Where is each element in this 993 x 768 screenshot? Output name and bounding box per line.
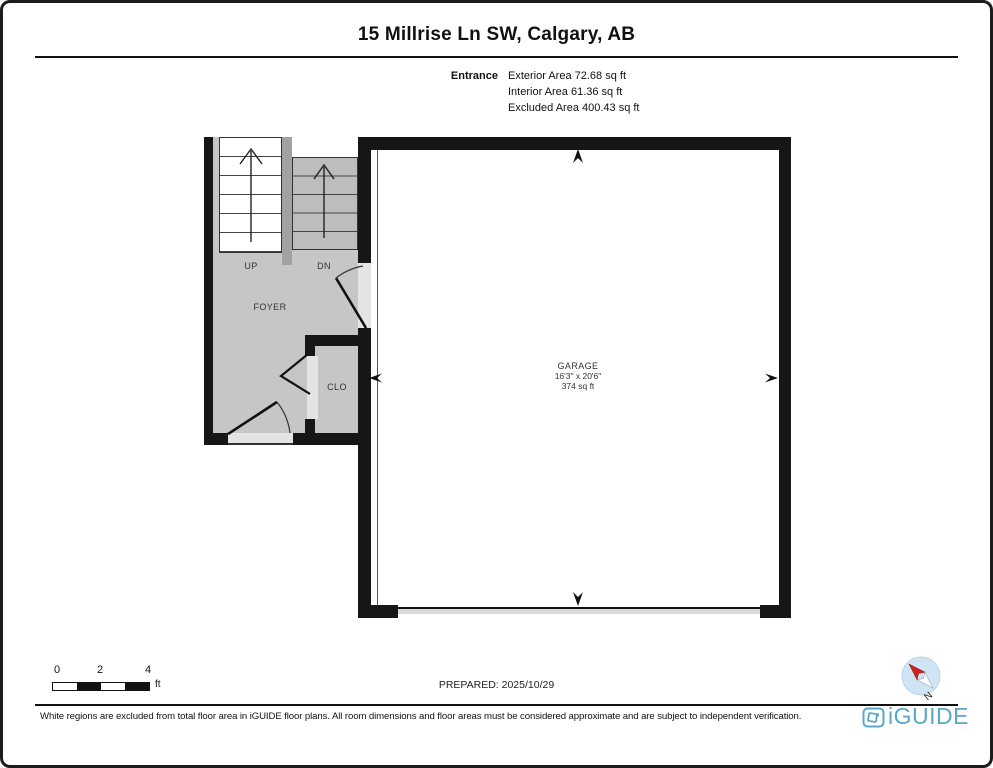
garage-left-wall-upper: [358, 137, 371, 263]
iguide-brand-text: iGUIDE: [888, 703, 969, 730]
closet-door-jamb-top: [305, 346, 315, 356]
excluded-area-value: Excluded Area 400.43 sq ft: [508, 100, 639, 116]
garage-dimensions: 16'3" x 20'6": [498, 371, 658, 381]
garage-label: GARAGE 16'3" x 20'6" 374 sq ft: [498, 361, 658, 391]
scale-tick-2: 2: [90, 664, 110, 676]
room-label-garage: GARAGE: [498, 361, 658, 371]
compass-icon: [899, 654, 943, 698]
page-title: 15 Millrise Ln SW, Calgary, AB: [0, 24, 993, 46]
prepared-date: PREPARED: 2025/10/29: [0, 679, 993, 691]
area-summary: Entrance Exterior Area 72.68 sq ft Inter…: [378, 68, 639, 116]
dimension-arrow-right-icon: [765, 374, 778, 383]
footer-divider: [35, 704, 958, 706]
stair-divider-wall: [282, 137, 292, 265]
room-label-foyer: FOYER: [240, 302, 300, 312]
dimension-arrow-up-icon: [573, 149, 583, 163]
room-label-dn: DN: [309, 261, 339, 271]
closet-top-wall: [305, 335, 360, 346]
floor-plan-page: 15 Millrise Ln SW, Calgary, AB Entrance …: [0, 0, 993, 768]
dimension-arrow-down-icon: [573, 592, 583, 606]
excluded-region-outline: [377, 150, 378, 605]
garage-area: 374 sq ft: [498, 381, 658, 391]
foyer-left-wall: [204, 137, 213, 445]
staircase-down: [292, 157, 358, 250]
garage-door-opening: [358, 263, 371, 328]
area-summary-lines: Exterior Area 72.68 sq ft Interior Area …: [508, 68, 639, 116]
foyer-bottom-wall-right: [293, 433, 360, 445]
closet-door-jamb-bottom: [305, 419, 315, 433]
closet-door-track: [307, 356, 318, 419]
garage-top-wall: [358, 137, 791, 150]
iguide-logo-icon: [862, 707, 885, 728]
garage-bottom-corner-right: [760, 605, 791, 618]
garage-right-wall: [779, 137, 791, 618]
garage-bottom-corner-left: [358, 605, 398, 618]
room-label-up: UP: [236, 261, 266, 271]
entrance-threshold: [228, 433, 293, 445]
garage-left-wall-lower: [358, 328, 371, 618]
room-name-label: Entrance: [378, 68, 498, 116]
foyer-bottom-wall-left: [204, 433, 228, 445]
disclaimer-text: White regions are excluded from total fl…: [40, 711, 840, 722]
garage-door-threshold: [398, 609, 760, 614]
interior-area-value: Interior Area 61.36 sq ft: [508, 84, 639, 100]
staircase-up: [219, 137, 282, 253]
scale-tick-4: 4: [138, 664, 158, 676]
exterior-area-value: Exterior Area 72.68 sq ft: [508, 68, 639, 84]
scale-tick-0: 0: [47, 664, 67, 676]
room-label-closet: CLO: [322, 382, 352, 392]
header-divider: [35, 56, 958, 58]
